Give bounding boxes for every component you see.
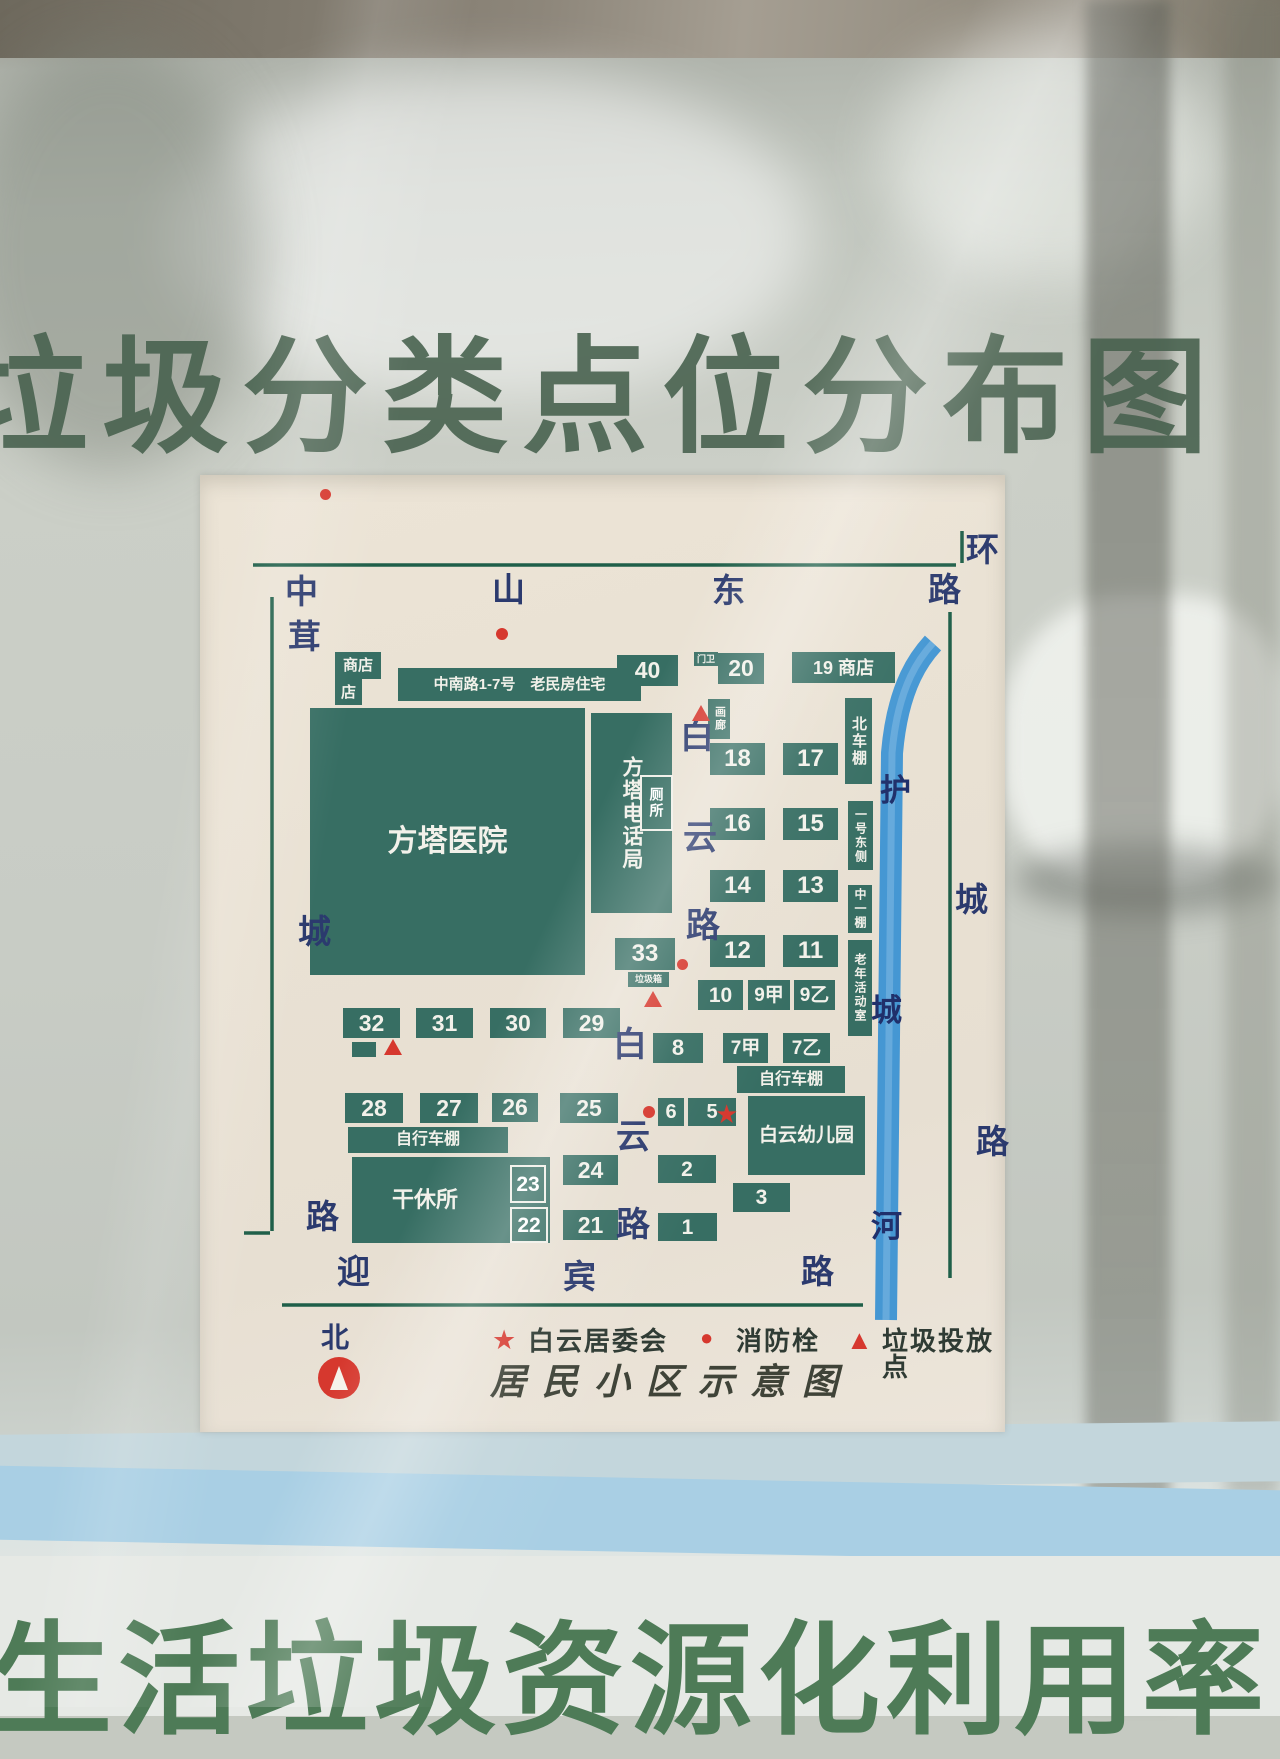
building-21: 21	[563, 1210, 618, 1240]
hydrant-dot-4	[643, 1106, 655, 1118]
garbage-triangle-1	[692, 705, 710, 721]
committee-star: ★	[715, 1101, 738, 1127]
building-9yi: 9乙	[794, 980, 835, 1010]
label-gatehouse: 门卫	[694, 652, 718, 666]
building-shop-upper: 商店	[335, 652, 381, 679]
road-char-lu-right: 路	[976, 1125, 1009, 1158]
river-char-cheng: 城	[871, 995, 902, 1026]
compass-icon	[318, 1357, 360, 1399]
building-middle-shed: 中一棚	[848, 885, 872, 933]
building-bike-shed-west: 自行车棚	[348, 1127, 508, 1153]
building-24: 24	[563, 1155, 618, 1185]
building-6: 6	[658, 1098, 684, 1126]
poster-top-title: 垃圾分类点位分布图	[0, 296, 1280, 478]
road-char-lu-bottom: 路	[801, 1255, 834, 1288]
building-17: 17	[783, 743, 838, 775]
building-25: 25	[560, 1093, 618, 1123]
legend-symbol-dot: ●	[700, 1327, 713, 1349]
road-char-zhong: 中	[285, 575, 318, 608]
poster-bottom-banner: 生活垃圾资源化利用率	[0, 1582, 1280, 1759]
building-30: 30	[490, 1008, 546, 1038]
building-33: 33	[615, 938, 675, 970]
road-char-huan: 环	[966, 533, 999, 566]
building-10: 10	[698, 980, 743, 1010]
building-16: 16	[710, 808, 765, 840]
compass-north-label: 北	[318, 1323, 352, 1353]
road-char-yun-lower: 云	[616, 1120, 650, 1154]
road-char-ying: 迎	[337, 1255, 370, 1288]
road-char-dong: 东	[712, 574, 745, 607]
building-toilet: 厕所	[640, 775, 673, 831]
building-23: 23	[510, 1165, 546, 1203]
road-char-lu-upper: 路	[686, 909, 720, 943]
building-29: 29	[563, 1008, 620, 1038]
building-1: 1	[658, 1213, 717, 1241]
building-8: 8	[653, 1033, 703, 1063]
building-2: 2	[658, 1155, 716, 1183]
garbage-triangle-3	[384, 1039, 402, 1055]
road-char-bai-upper: 白	[680, 720, 714, 754]
compass-needle-icon	[330, 1366, 348, 1390]
building-28: 28	[345, 1093, 403, 1123]
building-26: 26	[492, 1093, 538, 1122]
building-11: 11	[783, 935, 838, 967]
road-char-cheng-left: 城	[298, 915, 331, 948]
community-map-poster: 商店店中南路1-7号 老民房住宅40门卫2019 商店方塔医院方塔电话局厕所画廊…	[200, 475, 1005, 1432]
building-bike-shed-east: 自行车棚	[737, 1066, 845, 1093]
building-no1-east-side: 一号东侧	[848, 801, 873, 870]
river-char-he: 河	[871, 1211, 902, 1242]
legend-label-dot: 消防栓	[736, 1328, 820, 1354]
building-32: 32	[343, 1008, 400, 1038]
building-3: 3	[733, 1183, 790, 1212]
map-caption: 居民小区示意图	[490, 1353, 854, 1405]
building-27: 27	[420, 1093, 478, 1123]
hydrant-dot-1	[320, 489, 331, 500]
legend-symbol-star: ★	[492, 1327, 516, 1354]
road-char-bai-lower: 白	[613, 1028, 647, 1062]
legend-label-star: 白云居委会	[528, 1328, 668, 1354]
building-zhongnan-housing: 中南路1-7号 老民房住宅	[398, 668, 641, 701]
building-31: 31	[416, 1008, 473, 1038]
legend-label-triangle: 垃圾投放点	[882, 1328, 1005, 1380]
building-shop-lower: 店	[335, 679, 362, 705]
building-15: 15	[783, 808, 838, 840]
road-char-lu-top: 路	[928, 573, 961, 606]
garbage-triangle-2	[644, 991, 662, 1007]
building-20: 20	[718, 653, 764, 684]
building-13: 13	[783, 870, 838, 902]
hydrant-dot-2	[496, 628, 508, 640]
rect-below-32	[352, 1042, 376, 1057]
road-char-rong: 茸	[288, 620, 321, 653]
building-18: 18	[710, 743, 765, 775]
road-char-yun-upper: 云	[683, 821, 717, 855]
building-baiyun-kindergarten: 白云幼儿园	[748, 1096, 865, 1175]
building-14: 14	[710, 870, 765, 902]
building-senior-activity-room: 老年活动室	[848, 940, 872, 1036]
building-7yi: 7乙	[783, 1033, 830, 1063]
road-char-bin: 宾	[563, 1260, 596, 1293]
hydrant-dot-3	[677, 959, 688, 970]
road-char-lu-lower: 路	[616, 1208, 650, 1242]
building-9jia: 9甲	[748, 980, 790, 1010]
building-22: 22	[510, 1207, 548, 1243]
road-char-shan: 山	[492, 573, 525, 606]
building-40: 40	[617, 655, 678, 686]
road-char-lu-left: 路	[306, 1200, 339, 1233]
label-garbage-bin: 垃圾箱	[628, 972, 669, 987]
building-north-bike-shed: 北车棚	[845, 698, 872, 784]
building-7jia: 7甲	[723, 1033, 768, 1063]
road-char-cheng-right: 城	[955, 883, 988, 916]
building-19-shop: 19 商店	[792, 652, 895, 683]
building-fangta-hospital: 方塔医院	[310, 708, 585, 975]
tree-reflection-streak	[1226, 0, 1280, 1500]
legend-symbol-triangle: ▲	[846, 1327, 873, 1354]
river-char-hu: 护	[880, 775, 911, 806]
